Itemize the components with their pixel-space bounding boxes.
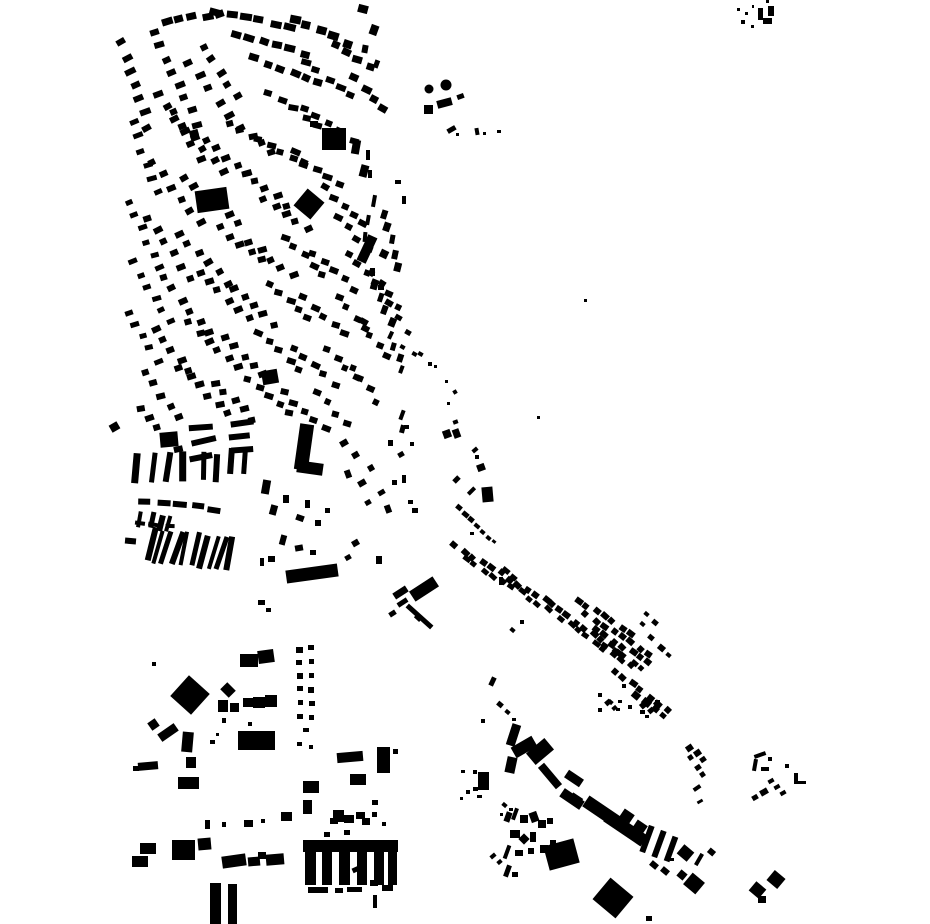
building	[274, 346, 283, 354]
building	[284, 44, 296, 53]
building	[497, 130, 501, 133]
building	[309, 745, 313, 749]
building	[200, 43, 209, 51]
building	[185, 308, 194, 316]
building	[540, 845, 548, 853]
building	[174, 413, 184, 421]
building	[349, 211, 359, 220]
building	[203, 392, 212, 400]
building	[518, 833, 529, 844]
building	[618, 700, 622, 703]
building	[327, 30, 340, 41]
building	[532, 600, 541, 608]
building	[384, 289, 394, 298]
building	[216, 223, 225, 231]
building	[382, 352, 392, 361]
building	[297, 714, 303, 719]
building	[270, 321, 278, 328]
building	[298, 700, 303, 705]
building	[473, 787, 478, 791]
building	[195, 249, 205, 257]
building	[310, 361, 321, 370]
building	[331, 381, 340, 389]
building	[404, 329, 412, 336]
building	[266, 853, 285, 866]
building	[361, 45, 368, 54]
building	[157, 723, 179, 742]
building	[283, 22, 296, 32]
building	[204, 277, 214, 285]
building	[351, 451, 360, 460]
building	[215, 98, 226, 108]
building	[259, 195, 268, 203]
building	[481, 568, 490, 576]
building	[373, 895, 377, 908]
building	[366, 150, 370, 160]
building	[231, 396, 240, 404]
building	[142, 283, 151, 290]
building	[504, 709, 510, 715]
building	[402, 475, 406, 483]
building	[154, 41, 165, 50]
building	[174, 80, 185, 89]
building	[512, 872, 518, 877]
building	[308, 887, 328, 893]
building	[479, 529, 485, 535]
building	[442, 429, 452, 439]
building	[449, 540, 458, 549]
building	[699, 771, 706, 778]
building	[274, 64, 285, 74]
building	[538, 763, 562, 790]
building	[229, 342, 239, 350]
building	[203, 258, 214, 268]
building	[643, 611, 649, 617]
building	[312, 388, 322, 397]
building	[157, 500, 170, 507]
map-viewport	[0, 0, 930, 924]
building	[272, 202, 282, 210]
building	[473, 523, 480, 530]
building	[186, 12, 197, 21]
building	[147, 718, 160, 731]
building	[393, 749, 398, 754]
building	[290, 68, 302, 78]
building	[162, 56, 172, 65]
building	[758, 8, 763, 20]
building	[685, 744, 694, 753]
building	[280, 388, 289, 396]
building	[205, 820, 210, 829]
building	[137, 272, 145, 279]
building	[337, 751, 364, 763]
building	[270, 20, 282, 29]
building	[241, 353, 249, 360]
building	[376, 556, 382, 564]
building	[296, 647, 303, 653]
building	[745, 12, 748, 15]
building	[446, 125, 456, 134]
building	[167, 402, 176, 410]
building	[257, 256, 266, 264]
building	[211, 380, 221, 387]
building	[785, 764, 789, 768]
building	[409, 576, 439, 601]
building	[382, 222, 392, 233]
building	[179, 93, 189, 101]
building	[227, 448, 235, 474]
building	[283, 495, 289, 503]
building	[693, 749, 702, 758]
building	[141, 368, 150, 376]
building	[751, 25, 754, 28]
building	[210, 740, 215, 744]
building	[230, 418, 254, 427]
building	[707, 847, 716, 856]
building	[303, 728, 309, 732]
building	[365, 215, 371, 226]
building	[131, 453, 141, 483]
building	[351, 539, 360, 548]
building	[452, 428, 462, 439]
building	[125, 538, 136, 545]
round-tank-building	[441, 80, 452, 91]
building	[369, 94, 379, 104]
building	[296, 460, 323, 476]
building	[333, 213, 344, 222]
building	[312, 78, 323, 87]
building	[466, 790, 470, 794]
building	[404, 425, 409, 429]
building	[122, 53, 134, 63]
building	[489, 853, 496, 860]
building	[520, 620, 524, 624]
building	[166, 68, 177, 77]
building	[768, 6, 774, 16]
building	[258, 852, 266, 859]
building	[528, 848, 534, 854]
building	[211, 143, 221, 152]
building	[313, 165, 323, 173]
building	[243, 698, 253, 707]
building	[285, 409, 294, 416]
building	[488, 676, 496, 686]
building	[241, 293, 250, 301]
building	[288, 399, 298, 407]
building	[402, 196, 406, 204]
building	[124, 309, 133, 316]
building	[138, 498, 150, 504]
building	[148, 379, 157, 387]
building	[163, 452, 174, 483]
building	[281, 210, 291, 218]
building	[132, 131, 143, 139]
building	[377, 103, 388, 114]
building	[640, 710, 645, 714]
building	[241, 450, 248, 474]
building	[215, 268, 224, 277]
building	[184, 206, 194, 215]
building	[310, 550, 316, 555]
building	[329, 194, 340, 203]
building	[280, 234, 290, 243]
building	[478, 772, 489, 790]
building	[344, 469, 352, 479]
building	[250, 177, 258, 184]
building	[377, 489, 386, 497]
building	[644, 650, 653, 659]
building	[434, 365, 437, 368]
building	[388, 440, 393, 446]
round-tank-building	[425, 85, 434, 94]
building	[222, 822, 226, 827]
building	[159, 169, 169, 178]
building	[172, 840, 195, 860]
building	[297, 673, 303, 679]
building	[550, 840, 556, 848]
building	[286, 357, 296, 365]
building	[318, 312, 327, 320]
building	[109, 421, 121, 432]
building	[659, 712, 667, 720]
building	[245, 314, 254, 322]
building	[512, 718, 516, 721]
building	[319, 370, 327, 378]
building	[382, 885, 393, 891]
building	[266, 256, 275, 264]
building	[309, 262, 320, 271]
building	[388, 609, 397, 617]
building	[592, 617, 601, 626]
building	[207, 506, 221, 514]
building	[758, 896, 766, 903]
building	[531, 590, 540, 599]
building	[543, 838, 579, 870]
building	[248, 248, 256, 256]
building	[220, 682, 236, 698]
building	[233, 91, 243, 100]
building	[411, 351, 417, 357]
building	[159, 237, 168, 245]
building	[461, 510, 470, 518]
building	[500, 813, 503, 816]
building	[619, 624, 628, 633]
building	[221, 853, 246, 868]
building	[170, 675, 210, 715]
building	[144, 414, 154, 423]
building	[177, 356, 187, 365]
building	[222, 718, 226, 723]
building	[216, 68, 227, 78]
building	[322, 173, 333, 182]
building	[481, 487, 493, 503]
building	[646, 916, 652, 921]
building	[316, 25, 328, 35]
building	[219, 389, 227, 396]
building	[225, 297, 235, 306]
building	[469, 560, 477, 568]
building	[359, 164, 370, 178]
building	[645, 715, 649, 718]
building	[496, 701, 504, 709]
building	[461, 770, 465, 773]
building	[282, 202, 290, 210]
building	[344, 815, 354, 823]
building	[428, 362, 432, 366]
building	[182, 58, 193, 67]
building	[349, 364, 357, 372]
building	[369, 24, 380, 36]
building	[341, 364, 349, 372]
building	[779, 790, 786, 796]
building	[309, 416, 319, 424]
building	[334, 354, 344, 362]
building	[335, 180, 345, 188]
building	[345, 91, 355, 100]
building	[342, 303, 350, 311]
building	[649, 860, 659, 870]
building	[301, 73, 311, 83]
building	[655, 700, 660, 704]
building	[331, 321, 340, 329]
building	[165, 346, 175, 354]
building	[389, 234, 395, 244]
building-footprint-map	[0, 0, 930, 924]
building	[529, 811, 540, 823]
building	[230, 703, 239, 712]
building	[768, 757, 772, 761]
building	[351, 55, 363, 64]
building	[371, 195, 377, 208]
building	[178, 297, 189, 306]
building	[271, 41, 282, 50]
building	[408, 500, 413, 504]
building	[321, 424, 332, 433]
building	[276, 148, 284, 156]
building	[300, 105, 309, 113]
building	[370, 280, 379, 291]
building	[222, 80, 231, 89]
building	[467, 486, 476, 495]
building	[357, 4, 369, 14]
building	[206, 54, 216, 64]
building	[150, 252, 159, 259]
building	[329, 266, 340, 275]
building	[194, 381, 202, 389]
building	[253, 15, 264, 24]
building	[380, 305, 389, 316]
building	[325, 508, 330, 513]
building	[125, 199, 133, 206]
building	[351, 235, 361, 244]
building	[309, 659, 314, 664]
building	[241, 170, 251, 178]
building	[447, 402, 450, 405]
building	[417, 351, 423, 357]
building	[144, 344, 153, 351]
building	[637, 665, 644, 672]
building	[289, 242, 298, 250]
building	[345, 250, 354, 259]
building	[622, 684, 626, 688]
building	[228, 884, 237, 924]
building	[166, 317, 175, 325]
building	[274, 289, 283, 297]
building	[184, 318, 192, 326]
building	[475, 455, 479, 459]
building	[295, 514, 305, 522]
building	[370, 880, 378, 886]
building	[391, 250, 399, 260]
building	[191, 121, 202, 129]
building	[311, 66, 320, 74]
building	[456, 133, 459, 136]
building	[471, 447, 478, 454]
building	[182, 239, 191, 247]
building	[142, 215, 151, 223]
building	[362, 818, 370, 825]
building	[341, 275, 350, 283]
building	[308, 645, 314, 650]
building	[618, 632, 627, 641]
building	[261, 819, 265, 823]
building	[651, 830, 666, 858]
building	[322, 345, 331, 353]
building	[479, 558, 488, 567]
building	[136, 405, 145, 412]
building	[657, 643, 666, 652]
building	[210, 156, 220, 165]
building	[538, 820, 546, 828]
building	[138, 761, 159, 771]
building	[130, 321, 140, 328]
building	[387, 331, 394, 340]
building	[611, 667, 619, 675]
building	[240, 654, 258, 667]
building	[204, 337, 215, 346]
building	[153, 225, 164, 234]
building	[248, 722, 252, 726]
building	[503, 845, 512, 860]
building	[694, 764, 702, 772]
building	[339, 329, 349, 338]
building	[130, 80, 141, 89]
building	[651, 619, 659, 627]
building	[133, 766, 139, 771]
building	[504, 756, 517, 774]
building	[250, 362, 259, 369]
building	[268, 556, 275, 562]
building	[766, 0, 769, 3]
building	[220, 333, 229, 341]
building	[157, 306, 165, 313]
building	[115, 37, 126, 47]
building	[763, 18, 772, 24]
building	[378, 285, 384, 290]
building	[335, 83, 346, 92]
building	[213, 454, 220, 482]
building	[140, 843, 156, 854]
building	[310, 121, 318, 127]
building	[344, 223, 353, 232]
building	[625, 636, 635, 646]
building	[467, 516, 475, 524]
building	[759, 787, 769, 796]
building	[273, 192, 283, 200]
building	[677, 844, 695, 862]
building	[188, 182, 199, 192]
building	[368, 170, 372, 178]
